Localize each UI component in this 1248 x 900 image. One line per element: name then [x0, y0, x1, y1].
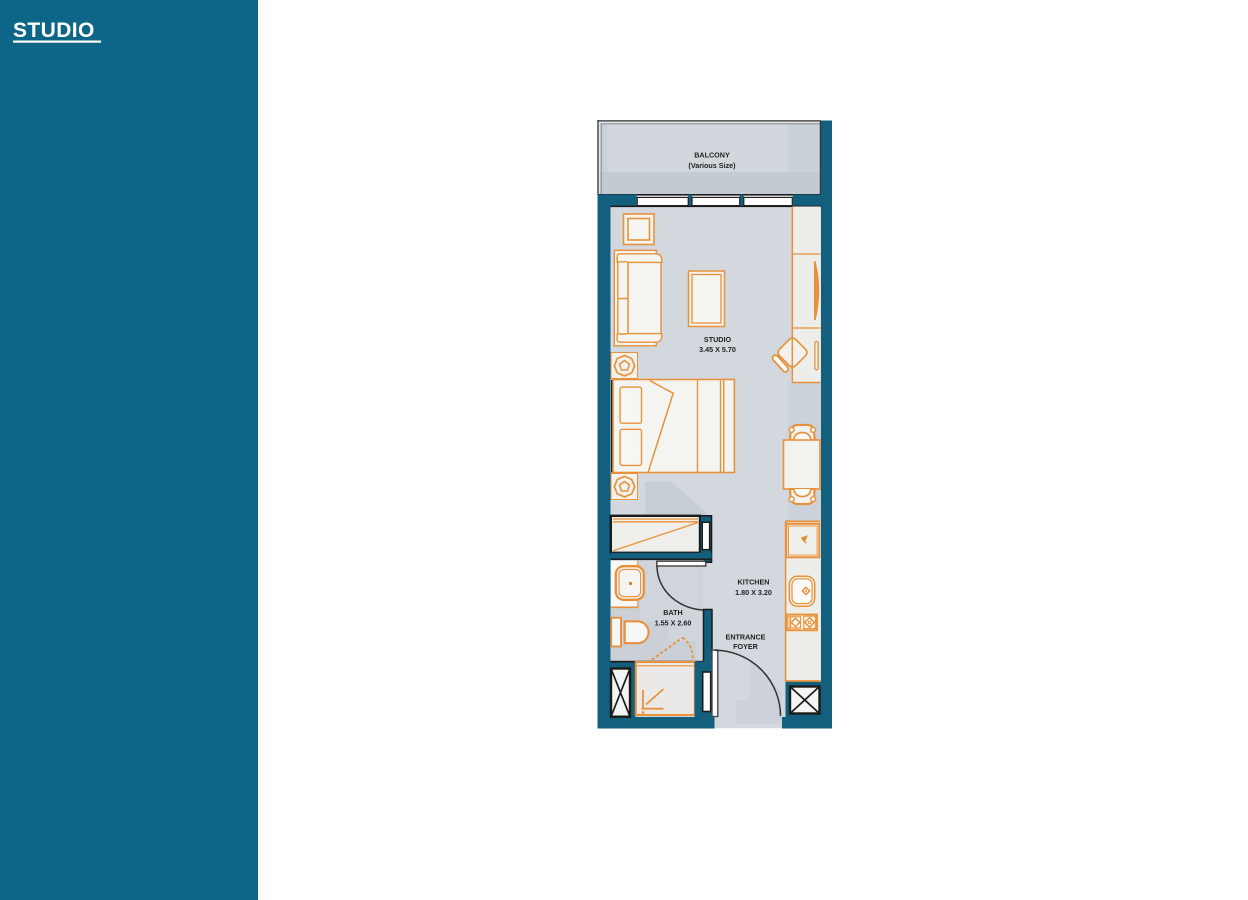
- svg-text:KITCHEN: KITCHEN: [738, 578, 770, 587]
- svg-text:1.55 X 2.60: 1.55 X 2.60: [655, 618, 692, 627]
- svg-text:1.80 X 3.20: 1.80 X 3.20: [735, 588, 772, 597]
- svg-text:BATH: BATH: [663, 608, 682, 617]
- svg-text:ENTRANCE: ENTRANCE: [726, 632, 766, 641]
- svg-text:3.45 X 5.70: 3.45 X 5.70: [699, 345, 736, 354]
- svg-text:STUDIO: STUDIO: [704, 335, 732, 344]
- svg-text:(Various Size): (Various Size): [688, 161, 736, 170]
- svg-text:BALCONY: BALCONY: [694, 151, 730, 160]
- svg-text:FOYER: FOYER: [733, 642, 759, 651]
- svg-text:STUDIO: STUDIO: [13, 19, 95, 42]
